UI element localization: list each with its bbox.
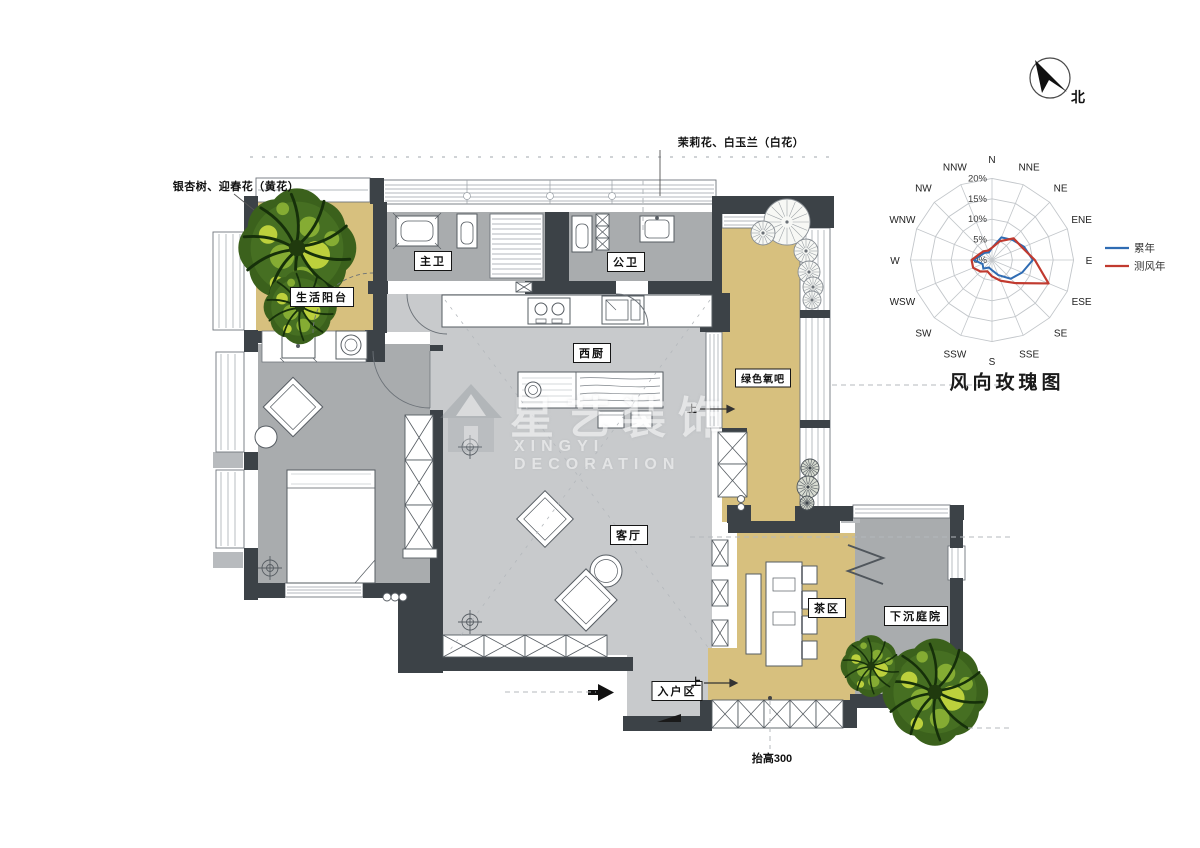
plant <box>801 459 819 477</box>
svg-text:累年: 累年 <box>1134 242 1155 255</box>
svg-text:NW: NW <box>915 183 932 194</box>
room-label-west-kitchen: 西厨 <box>573 343 611 363</box>
bathtub <box>393 213 441 249</box>
kitchen-sink <box>602 296 644 324</box>
plant <box>751 221 775 245</box>
svg-text:S: S <box>989 357 996 368</box>
sink-public <box>640 216 674 242</box>
svg-text:NE: NE <box>1054 183 1068 194</box>
svg-text:ENE: ENE <box>1071 215 1092 226</box>
kitchen-island <box>518 372 663 408</box>
annotation-floor-raise: 抬高300 <box>752 750 792 766</box>
plant <box>797 476 819 498</box>
north-arrow <box>1015 45 1105 115</box>
room-label-tea-area: 茶区 <box>808 598 846 618</box>
wind-rose-chart: 0%5%10%15%20%NNNENEENEEESESESSESSSWSWWSW… <box>862 148 1197 400</box>
svg-text:测风年: 测风年 <box>1134 260 1166 273</box>
svg-text:20%: 20% <box>968 173 988 184</box>
north-arrow-dart <box>1035 60 1067 93</box>
tea-table <box>766 562 802 666</box>
room-label-public-bath: 公卫 <box>607 252 645 272</box>
room-label-green-oxygen-bar: 绿色氧吧 <box>735 369 791 388</box>
svg-text:E: E <box>1086 256 1093 267</box>
svg-text:N: N <box>988 155 995 166</box>
plant <box>803 291 821 309</box>
svg-text:ESE: ESE <box>1072 297 1092 308</box>
stairs-up-label-kitchen: 上 <box>687 401 697 416</box>
toilet-master <box>457 214 477 248</box>
svg-text:WSW: WSW <box>890 297 916 308</box>
stairs-up-label-entry: 上 <box>691 674 701 689</box>
floorplan-canvas: 生活阳台 主卫 公卫 西厨 绿色氧吧 客厅 茶区 下沉庭院 入户区 银杏树、迎春… <box>0 0 1200 848</box>
svg-text:W: W <box>890 256 900 267</box>
kitchen-counter <box>442 295 712 327</box>
annotation-planting-yellow: 银杏树、迎春花（黄花） <box>173 178 300 194</box>
raise-marker <box>768 696 772 700</box>
bedside-table <box>255 426 277 448</box>
floor-plan-svg <box>0 0 1200 848</box>
svg-text:SE: SE <box>1054 329 1068 340</box>
toilet-public <box>572 216 592 252</box>
room-label-life-balcony: 生活阳台 <box>290 287 354 307</box>
room-label-sunken-courtyard: 下沉庭院 <box>884 606 948 626</box>
annotation-planting-white: 茉莉花、白玉兰（白花） <box>678 134 805 150</box>
svg-text:SSE: SSE <box>1019 350 1039 361</box>
svg-text:10%: 10% <box>968 214 988 225</box>
washing-machine <box>336 331 367 359</box>
plant <box>794 239 818 263</box>
wind-rose-title: 风向玫瑰图 <box>949 368 1064 395</box>
svg-text:WNW: WNW <box>889 215 916 226</box>
stove <box>528 298 570 324</box>
svg-text:NNW: NNW <box>943 162 967 173</box>
north-label: 北 <box>1071 87 1085 107</box>
svg-text:NNE: NNE <box>1019 162 1040 173</box>
svg-text:15%: 15% <box>968 194 988 205</box>
bed <box>287 470 375 583</box>
rose-grid <box>910 178 1073 341</box>
entry-arrow <box>588 684 614 701</box>
room-label-master-bath: 主卫 <box>414 251 452 271</box>
svg-text:5%: 5% <box>973 235 987 246</box>
tea-bench <box>746 574 761 654</box>
plant <box>800 496 814 510</box>
svg-text:SSW: SSW <box>943 350 966 361</box>
room-label-living-room: 客厅 <box>610 525 648 545</box>
svg-text:SW: SW <box>915 329 932 340</box>
rose-legend: 累年测风年 <box>1105 242 1166 273</box>
